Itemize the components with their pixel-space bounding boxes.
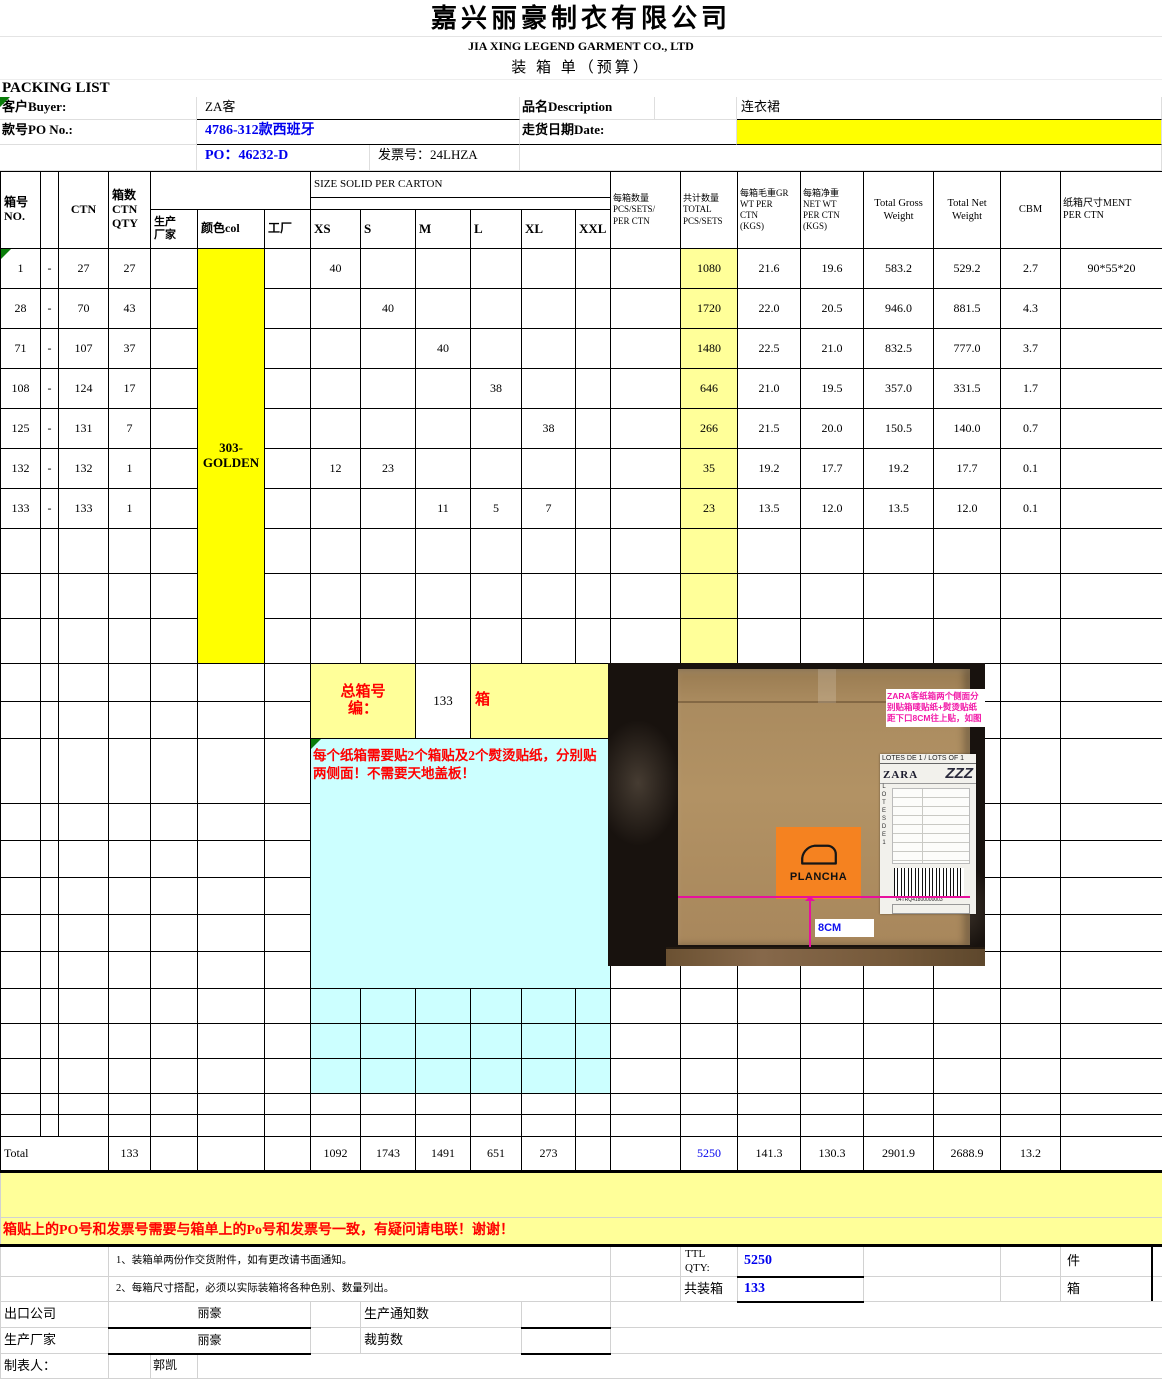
table-rows-6-dash: -	[41, 489, 59, 529]
grid-cell	[1001, 529, 1061, 574]
photo-annotation: ZARA客纸箱两个侧面分 别贴箱唛贴纸+熨烫贴纸 距下口8CM往上贴，如图	[886, 689, 985, 727]
grid-cell	[265, 878, 311, 915]
grid-cell	[59, 1115, 109, 1137]
grid-cell	[738, 1094, 801, 1115]
grid-cell	[1061, 1115, 1162, 1137]
grid-cell	[681, 1059, 738, 1094]
grid-cell	[151, 289, 198, 329]
grid-cell	[59, 952, 109, 989]
grid-cell	[151, 804, 198, 841]
grid-cell	[1001, 952, 1061, 989]
height-marker-line	[678, 896, 970, 898]
grid-cell	[109, 529, 151, 574]
table-rows-1-xl	[522, 289, 576, 329]
table-headers-sizes-5: XXL	[576, 210, 611, 249]
grid-cell	[1061, 702, 1162, 739]
table-rows-2-qty: 37	[109, 329, 151, 369]
exporter-label: 出口公司	[1, 1302, 109, 1328]
grid-cell	[1, 1172, 1162, 1218]
grid-cell	[801, 1094, 864, 1115]
grid-cell	[198, 1115, 265, 1137]
table-rows-0-xxl	[576, 249, 611, 289]
buyer-value: ZA客	[197, 97, 520, 120]
grid-cell: 132- 1321 1223 35 19.217.7 19.217.7 0.1	[1, 449, 1162, 489]
grid-cell	[1001, 739, 1061, 804]
table-rows-3-total: 646	[681, 369, 738, 409]
grid-cell	[864, 1115, 934, 1137]
ttl-qty-unit: 件	[1061, 1246, 1162, 1277]
grid-cell	[416, 529, 471, 574]
grid-cell	[681, 529, 738, 574]
table-rows-5-l	[471, 449, 522, 489]
grid-cell	[1061, 915, 1162, 952]
table-rows-0-tgw: 583.2	[864, 249, 934, 289]
grid-cell	[864, 1094, 934, 1115]
grid-cell	[265, 804, 311, 841]
table-rows-3-l: 38	[471, 369, 522, 409]
grid-cell	[311, 619, 361, 664]
grid-cell	[522, 574, 576, 619]
total-carton-unit: 箱	[471, 664, 611, 739]
grid-cell	[41, 664, 59, 702]
grid-cell	[522, 529, 576, 574]
plancha-sticker: PLANCHA	[776, 827, 861, 899]
grid-cell	[1001, 702, 1061, 739]
table-rows-0-xs: 40	[311, 249, 361, 289]
grid-cell	[1061, 1059, 1162, 1094]
grid-cell	[801, 1059, 864, 1094]
table-headers-tgw: Total Gross Weight	[864, 172, 934, 249]
grid-cell	[934, 1094, 1001, 1115]
table-rows-3-to: 124	[59, 369, 109, 409]
grid-cell	[522, 989, 576, 1024]
grid-cell	[1, 664, 41, 702]
grid-cell	[1, 878, 41, 915]
total-carton-box-label: 共装箱	[681, 1277, 738, 1302]
grid-cell	[471, 1115, 522, 1137]
grid-cell	[198, 1024, 265, 1059]
table-rows-6-total: 23	[681, 489, 738, 529]
grid-cell	[681, 989, 738, 1024]
grid-cell	[361, 529, 416, 574]
grid-cell	[471, 989, 522, 1024]
grid-cell	[522, 1115, 576, 1137]
grid-cell	[151, 529, 198, 574]
grid-cell	[151, 172, 311, 210]
table-rows-3-xs	[311, 369, 361, 409]
table-rows-6-nw: 12.0	[801, 489, 864, 529]
table-rows-0-dash: -	[41, 249, 59, 289]
grid-cell	[361, 1059, 416, 1094]
grid-cell: 生产厂家 丽豪 裁剪数	[1, 1328, 1162, 1354]
grid-cell	[198, 1059, 265, 1094]
table-rows-5-total: 35	[681, 449, 738, 489]
grid-cell	[522, 619, 576, 664]
table-rows-3-nw: 19.5	[801, 369, 864, 409]
grid-cell	[265, 739, 311, 804]
label-side-text: LOTESDE1	[881, 784, 887, 848]
table-rows-0-l	[471, 249, 522, 289]
grid-cell	[611, 989, 681, 1024]
grid-cell	[864, 1246, 1001, 1277]
table-rows-1-nw: 20.5	[801, 289, 864, 329]
grid-cell	[681, 1115, 738, 1137]
table-rows-2-xs	[311, 329, 361, 369]
grid-cell	[576, 989, 611, 1024]
grid-cell	[934, 574, 1001, 619]
table-total_row-nw: 130.3	[801, 1137, 864, 1172]
grid-cell	[611, 1059, 681, 1094]
grid-cell	[934, 1059, 1001, 1094]
table-headers-sizes-3: L	[471, 210, 522, 249]
grid-cell	[151, 1094, 198, 1115]
grid-cell	[1, 841, 41, 878]
table-rows-1-dash: -	[41, 289, 59, 329]
grid-cell	[361, 574, 416, 619]
grid-cell: 箱贴上的PO号和发票号需要与箱单上的Po号和发票号一致，有疑问请电联！谢谢！	[1, 1218, 1162, 1246]
grid-cell	[681, 574, 738, 619]
empty-cell	[0, 145, 197, 171]
preparer-value: 郭凯	[151, 1354, 198, 1379]
grid-cell	[109, 1059, 151, 1094]
grid-cell	[265, 1115, 311, 1137]
grid-cell	[109, 1094, 151, 1115]
table-rows-6-to: 133	[59, 489, 109, 529]
grid-cell	[265, 664, 311, 702]
grid-cell	[1, 1059, 1162, 1094]
table-rows-3-tnw: 331.5	[934, 369, 1001, 409]
grid-cell	[41, 1024, 59, 1059]
grid-cell	[41, 574, 59, 619]
grid-cell	[311, 1115, 361, 1137]
table-rows-1-to: 70	[59, 289, 109, 329]
spreadsheet-area: 箱号 NO. CTN 箱数 CTN QTY SIZE SOLID PER CAR…	[0, 171, 1162, 1379]
table-rows-5-xs: 12	[311, 449, 361, 489]
grid-cell	[151, 952, 198, 989]
table-rows-5-gw: 19.2	[738, 449, 801, 489]
grid-cell	[1, 619, 1162, 664]
barcode	[894, 868, 964, 896]
table-rows-3-s	[361, 369, 416, 409]
table-total_row-xs: 1092	[311, 1137, 361, 1172]
grid-cell	[151, 369, 198, 409]
cutting-qty-value	[522, 1328, 611, 1354]
grid-cell	[1001, 619, 1061, 664]
grid-cell	[1001, 1246, 1061, 1277]
grid-cell	[198, 739, 265, 804]
grid-cell	[934, 1115, 1001, 1137]
table-headers-nw: 每箱净重 NET WT PER CTN (KGS)	[801, 172, 864, 249]
table-rows-0-xl	[522, 249, 576, 289]
grid-cell	[109, 915, 151, 952]
packing-list-title: PACKING LIST	[0, 80, 1162, 97]
grid-cell	[416, 989, 471, 1024]
grid-cell	[1, 574, 41, 619]
grid-cell	[1001, 804, 1061, 841]
table-rows-3-dim	[1061, 369, 1162, 409]
grid-cell	[265, 574, 311, 619]
grid-cell	[59, 739, 109, 804]
table-headers-tnw: Total Net Weight	[934, 172, 1001, 249]
table-rows-5-s: 23	[361, 449, 416, 489]
table-rows-5-dash: -	[41, 449, 59, 489]
grid-cell	[1, 915, 41, 952]
table-rows-5-tnw: 17.7	[934, 449, 1001, 489]
grid-cell	[151, 1115, 198, 1137]
table-rows-0-tnw: 529.2	[934, 249, 1001, 289]
grid-cell	[265, 489, 311, 529]
table-rows-5-xl	[522, 449, 576, 489]
table-rows-4-dim	[1061, 409, 1162, 449]
total-carton-box-unit: 箱	[1061, 1277, 1162, 1302]
zara-shipping-label: LOTES DE 1 / LOTS OF 1 ZARA ZZZ LOTESDE1…	[880, 754, 976, 914]
grid-cell	[265, 619, 311, 664]
empty-cell	[655, 97, 737, 120]
grid-cell	[151, 409, 198, 449]
grid-cell	[151, 489, 198, 529]
table-rows-4-xxl	[576, 409, 611, 449]
grid-cell	[198, 702, 265, 739]
table-headers-gw: 每箱毛重GR WT PER CTN (KGS)	[738, 172, 801, 249]
note-1: 1、装箱单两份作交货附件，如有更改请书面通知。	[109, 1246, 611, 1277]
grid-cell	[522, 1059, 576, 1094]
grid-cell	[109, 1115, 151, 1137]
packing-table: 箱号 NO. CTN 箱数 CTN QTY SIZE SOLID PER CAR…	[0, 171, 1162, 1379]
grid-cell: 71- 10737 40 1480 22.521.0 832.5777.0 3.…	[1, 329, 1162, 369]
grid-cell	[59, 1059, 109, 1094]
table-rows-1-qty: 43	[109, 289, 151, 329]
table-rows-5-cbm: 0.1	[1001, 449, 1061, 489]
table-total_row-l: 651	[471, 1137, 522, 1172]
grid-cell	[934, 619, 1001, 664]
table-headers-ctn: CTN	[59, 172, 109, 249]
grid-cell	[738, 574, 801, 619]
label-brand-row: ZARA ZZZ	[880, 764, 976, 784]
table-rows-3-xxl	[576, 369, 611, 409]
grid-cell	[59, 702, 109, 739]
grid-cell	[151, 739, 198, 804]
grid-cell	[864, 1277, 1001, 1302]
grid-cell	[265, 989, 311, 1024]
grid-cell	[611, 1328, 1162, 1354]
grid-cell: 1、装箱单两份作交货附件，如有更改请书面通知。 TTL QTY: 5250 件	[1, 1246, 1162, 1277]
grid-cell	[361, 1094, 416, 1115]
grid-cell	[265, 915, 311, 952]
table-rows-1-total: 1720	[681, 289, 738, 329]
grid-cell	[611, 1137, 681, 1172]
table-rows-4-to: 131	[59, 409, 109, 449]
table-rows-2-l	[471, 329, 522, 369]
table-rows-6-gw: 13.5	[738, 489, 801, 529]
table-headers-sizes-0: XS	[311, 210, 361, 249]
grid-cell	[934, 1024, 1001, 1059]
grid-cell	[864, 989, 934, 1024]
grid-cell	[151, 915, 198, 952]
note-2: 2、每箱尺寸搭配，必须以实际装箱将各种色别、数量列出。	[109, 1277, 611, 1302]
grid-cell	[109, 804, 151, 841]
arrow-up-icon	[805, 891, 815, 901]
grid-cell	[611, 249, 681, 289]
grid-cell	[1, 989, 1162, 1024]
table-rows-4-dash: -	[41, 409, 59, 449]
grid-cell	[265, 249, 311, 289]
grid-cell: 总箱号 编： 133 箱	[1, 664, 1162, 702]
grid-cell	[265, 529, 311, 574]
grid-cell	[611, 369, 681, 409]
grid-cell	[864, 1024, 934, 1059]
po-label: 款号PO No.:	[0, 120, 197, 145]
table-headers-sizes-4: XL	[522, 210, 576, 249]
grid-cell	[59, 878, 109, 915]
grid-cell	[611, 409, 681, 449]
table-headers-cbm: CBM	[1001, 172, 1061, 249]
grid-cell	[1001, 1059, 1061, 1094]
grid-cell	[41, 989, 59, 1024]
grid-cell	[198, 1137, 265, 1172]
grid-cell	[802, 846, 836, 864]
grid-cell	[59, 804, 109, 841]
grid-cell	[1, 529, 41, 574]
table-rows-2-m: 40	[416, 329, 471, 369]
grid-cell	[416, 1024, 471, 1059]
grid-cell	[1001, 664, 1061, 702]
grid-cell	[416, 1115, 471, 1137]
pallet-boxes	[666, 947, 985, 966]
zzz-code: ZZZ	[946, 765, 974, 782]
grid-cell	[311, 989, 361, 1024]
grid-cell	[1, 1094, 41, 1115]
grid-cell	[471, 1024, 522, 1059]
iron-icon	[797, 843, 841, 871]
table-rows-2-dash: -	[41, 329, 59, 369]
grid-cell	[41, 619, 59, 664]
grid-cell	[311, 529, 361, 574]
grid-cell	[151, 1137, 198, 1172]
table-rows-3-tgw: 357.0	[864, 369, 934, 409]
grid-cell	[801, 989, 864, 1024]
table-rows-2-s	[361, 329, 416, 369]
table-rows-4-from: 125	[1, 409, 41, 449]
grid-cell	[265, 1094, 311, 1115]
grid-cell	[611, 329, 681, 369]
grid-cell	[151, 1059, 198, 1094]
grid-cell	[311, 1302, 361, 1328]
table-total_row-total: 5250	[681, 1137, 738, 1172]
grid-cell	[471, 1059, 522, 1094]
grid-cell	[1061, 619, 1162, 664]
invoice-number-value: 发票号：24LHZA	[370, 145, 520, 171]
table-total_row-cbm: 13.2	[1001, 1137, 1061, 1172]
grid-cell	[801, 1115, 864, 1137]
table-rows-5-m	[416, 449, 471, 489]
grid-cell	[198, 1354, 1162, 1379]
grid-cell	[801, 619, 864, 664]
table-total_row-s: 1743	[361, 1137, 416, 1172]
grid-cell	[801, 574, 864, 619]
table-headers-dim: 纸箱尺寸MENT PER CTN	[1061, 172, 1162, 249]
grid-cell	[1061, 878, 1162, 915]
table-rows-2-xl	[522, 329, 576, 369]
table-rows-3-dash: -	[41, 369, 59, 409]
table-rows-6-tnw: 12.0	[934, 489, 1001, 529]
ttl-qty-value: 5250	[738, 1246, 864, 1277]
table-headers-sizes-1: S	[361, 210, 416, 249]
ttl-box-divider-line	[1151, 1245, 1153, 1301]
grid-cell	[109, 664, 151, 702]
grid-cell	[864, 619, 934, 664]
grid-cell	[59, 989, 109, 1024]
table-rows-2-gw: 22.5	[738, 329, 801, 369]
grid-cell	[109, 702, 151, 739]
grid-cell	[864, 529, 934, 574]
grid-cell: 108- 12417 38 646 21.019.5 357.0331.5 1.…	[1, 369, 1162, 409]
grid-cell: 28- 7043 40 1720 22.020.5 946.0881.5 4.3	[1, 289, 1162, 329]
grid-cell	[109, 1024, 151, 1059]
grid-cell	[738, 989, 801, 1024]
grid-cell	[311, 1328, 361, 1354]
grid-cell	[1001, 1024, 1061, 1059]
grid-cell	[151, 878, 198, 915]
grid-cell	[59, 1024, 109, 1059]
grid-cell	[1061, 989, 1162, 1024]
grid-cell	[1, 1059, 41, 1094]
grid-cell	[151, 329, 198, 369]
grid-cell	[265, 409, 311, 449]
grid-cell	[1001, 878, 1061, 915]
table-rows-4-tnw: 140.0	[934, 409, 1001, 449]
sticker-note: 每个纸箱需要贴2个箱贴及2个熨烫贴纸，分别贴两侧面！不需要天地盖板！	[311, 739, 611, 989]
grid-cell	[934, 989, 1001, 1024]
grid-cell	[1061, 841, 1162, 878]
producer-label: 生产厂家	[1, 1328, 109, 1354]
grid-cell	[1, 989, 41, 1024]
table-rows-1-xs	[311, 289, 361, 329]
table-rows-6-l: 5	[471, 489, 522, 529]
grid-cell	[576, 1115, 611, 1137]
grid-cell	[1, 1115, 41, 1137]
table-rows-6-xs	[311, 489, 361, 529]
table-headers-size_banner: SIZE SOLID PER CARTON	[311, 172, 611, 198]
grid-cell	[151, 1024, 198, 1059]
grid-cell	[41, 529, 59, 574]
total-carton-count: 133	[416, 664, 471, 739]
grid-cell	[934, 529, 1001, 574]
grid-cell	[1061, 1094, 1162, 1115]
grid-cell	[611, 1302, 1162, 1328]
grid-cell	[198, 664, 265, 702]
grid-cell	[681, 1094, 738, 1115]
grid-cell: 每个纸箱需要贴2个箱贴及2个熨烫贴纸，分别贴两侧面！不需要天地盖板！	[1, 739, 1162, 804]
grid-cell	[801, 529, 864, 574]
grid-cell	[198, 878, 265, 915]
grid-cell	[109, 841, 151, 878]
grid-cell	[1001, 1115, 1061, 1137]
table-rows-0-total: 1080	[681, 249, 738, 289]
table-total_row-qty: 133	[109, 1137, 151, 1172]
table-rows-1-tgw: 946.0	[864, 289, 934, 329]
table-headers-sizes-2: M	[416, 210, 471, 249]
grid-cell	[59, 915, 109, 952]
grid-cell	[59, 1094, 109, 1115]
grid-cell	[41, 878, 59, 915]
grid-cell	[265, 1137, 311, 1172]
grid-cell	[151, 619, 198, 664]
table-rows-3-gw: 21.0	[738, 369, 801, 409]
table-headers-no: 箱号 NO.	[1, 172, 41, 249]
grid-cell: 箱号 NO. CTN 箱数 CTN QTY SIZE SOLID PER CAR…	[1, 172, 1162, 198]
grid-cell	[1061, 804, 1162, 841]
grid-cell	[109, 739, 151, 804]
